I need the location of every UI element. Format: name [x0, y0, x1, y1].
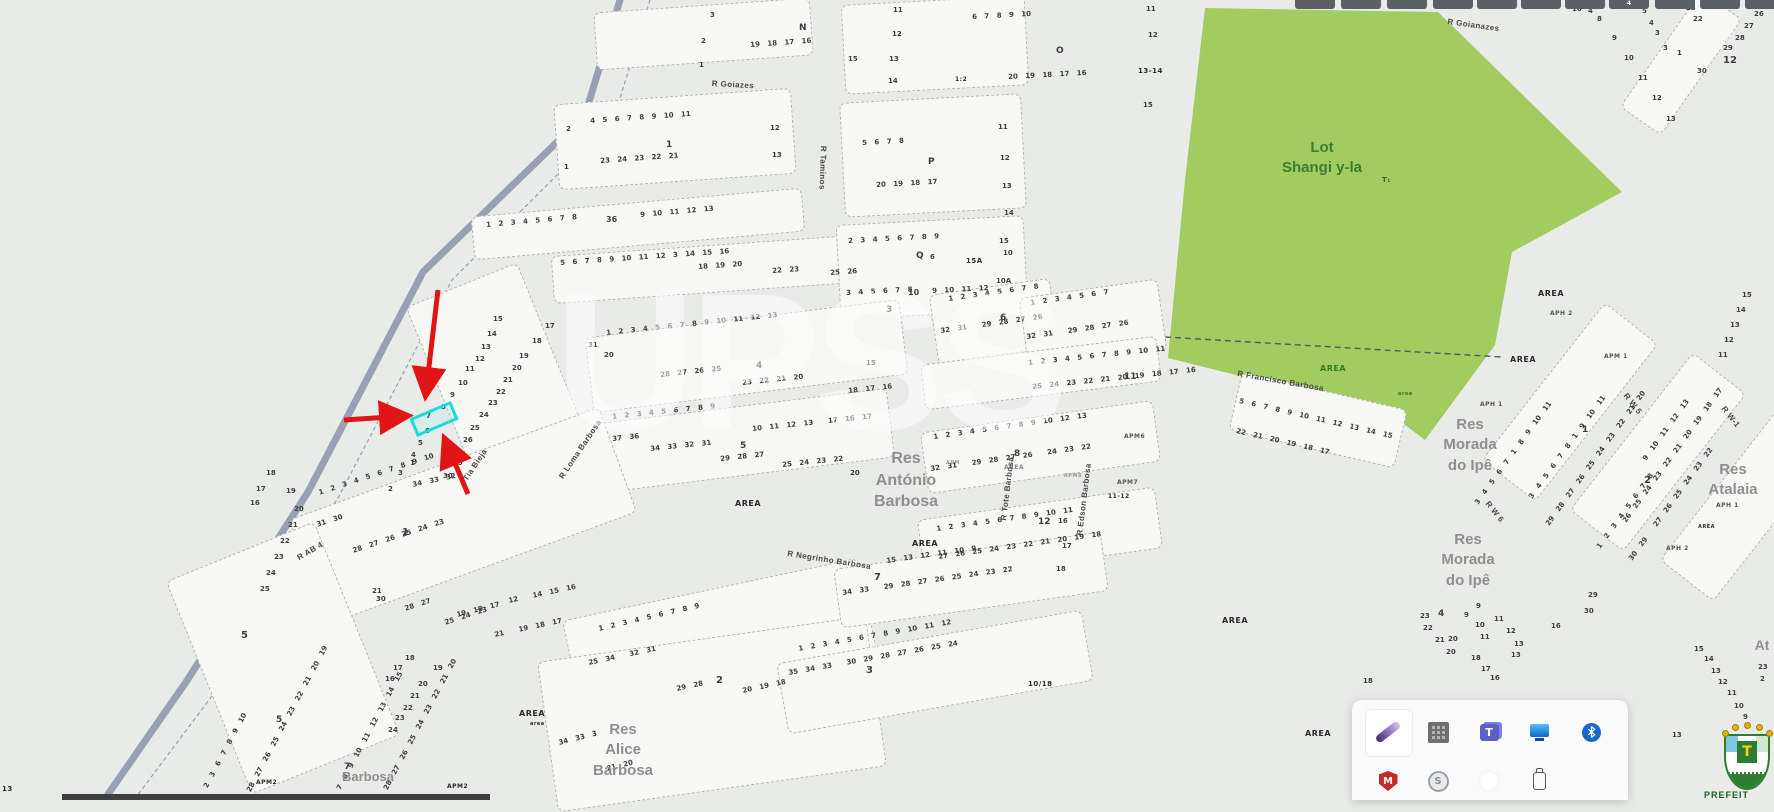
teams-glyph: T: [1480, 724, 1499, 741]
remote-grid-glyph: [1428, 722, 1449, 743]
pointer-arrow: [344, 416, 404, 420]
area-label: AREA: [1698, 525, 1715, 530]
lot-number: 18: [405, 655, 415, 662]
lot-number: 31: [588, 342, 598, 349]
lot-number: 29: [453, 460, 463, 467]
lot-number: 13: [1511, 652, 1521, 659]
bluetooth-icon[interactable]: [1568, 709, 1614, 755]
lot-number: 28 27: [404, 598, 432, 613]
lot-number: 11: [465, 366, 475, 373]
lot-number: 20 19 18 17 16: [1008, 70, 1087, 81]
lot-number: 28: [1735, 35, 1745, 42]
district-label-line: Morada: [1443, 435, 1496, 455]
lot-number: 26: [463, 437, 473, 444]
bottom-bar-fragment: [62, 794, 490, 800]
area-label: area: [530, 722, 545, 727]
crest-crown-dot: [1766, 730, 1773, 737]
lot-number: 20: [1448, 636, 1458, 643]
pen-icon[interactable]: [1365, 709, 1411, 755]
lot-number: 2: [388, 486, 393, 493]
cadastral-map: 32119 18 17 16N15111213146 7 8 9 10O20 1…: [0, 0, 1774, 800]
green-boundary-dash: [1165, 337, 1502, 357]
lot-number: 20: [512, 365, 522, 372]
lot-number: 13: [481, 344, 491, 351]
lot-number: 24: [388, 727, 398, 734]
area-label: AREA: [519, 710, 545, 718]
lot-number: 3: [710, 12, 715, 19]
window-tab[interactable]: [1655, 0, 1695, 9]
lot-number: 9: [1464, 612, 1469, 619]
lot-number: 12: [1718, 679, 1728, 686]
s-badge-icon[interactable]: S: [1415, 758, 1461, 804]
lot-number: 16: [1058, 518, 1068, 525]
area-label: APH 1: [1480, 402, 1503, 408]
window-tab[interactable]: [1341, 0, 1381, 9]
lot-number: 5: [241, 631, 248, 641]
lot-number: 15: [1143, 102, 1153, 109]
lot-number: 13: [1514, 641, 1524, 648]
district-label-line: Barbosa: [874, 491, 938, 513]
highlighted-lot[interactable]: [411, 403, 456, 435]
bluetooth-glyph: [1582, 723, 1601, 742]
district-label-line: Atalaia: [1708, 480, 1757, 500]
white-circle-icon[interactable]: [1466, 758, 1512, 804]
lot-number: O: [1056, 47, 1064, 56]
district-label-line: Res: [593, 720, 653, 740]
usb-glyph: [1533, 772, 1546, 790]
parcel-block: [553, 88, 796, 190]
monitor-icon[interactable]: [1516, 709, 1562, 755]
antonio-barbosa-label: ResAntónioBarbosa: [874, 448, 938, 513]
window-tab[interactable]: [1433, 0, 1473, 9]
district-label-line: Morada: [1441, 550, 1494, 570]
lot-number: 22: [1423, 625, 1433, 632]
lot-number: 10: [1624, 55, 1634, 62]
lot-number: 9: [1476, 603, 1481, 610]
lot-number: 14: [1004, 210, 1014, 217]
alice-barbosa-label: ResAliceBarbosa: [593, 720, 653, 781]
lot-number: 11: [1638, 75, 1648, 82]
lot-number: 21: [288, 522, 298, 529]
area-label: 15A: [966, 258, 983, 265]
lot-number: 22: [496, 389, 506, 396]
window-tab[interactable]: [1295, 0, 1335, 9]
lot-number: 5: [740, 442, 746, 451]
lot-number: 4: [756, 362, 762, 371]
lot-number: 29: [1723, 45, 1733, 52]
lot-number: 12: [1038, 518, 1051, 527]
lot-number: 3: [886, 306, 892, 315]
lot-number: P: [928, 158, 935, 167]
lot-number: 9: [1743, 714, 1748, 721]
window-tab[interactable]: [1521, 0, 1561, 9]
lot-number: 21: [1435, 637, 1445, 644]
crest-crown-dot: [1756, 724, 1763, 731]
lot-number: 19: [433, 665, 443, 672]
lot-number: 10: [458, 380, 468, 387]
lot-number: 12: [1724, 337, 1734, 344]
lot-number: 25: [470, 425, 480, 432]
window-tab[interactable]: [1477, 0, 1517, 9]
area-label: APH 1: [1716, 503, 1739, 509]
lot-number: 20: [1446, 649, 1456, 656]
lot-number: 4: [1588, 8, 1593, 15]
lot-number: 2: [1760, 676, 1765, 683]
lot-number: 29: [1588, 592, 1598, 599]
lot-number: 17: [1062, 543, 1072, 550]
lot-number: 16: [1490, 675, 1500, 682]
area-label: 11-12: [1108, 494, 1130, 500]
lot-number: 13: [889, 56, 899, 63]
lot-number: 20: [850, 470, 860, 477]
lot-number: 26: [1754, 11, 1764, 18]
pen-glyph: [1375, 720, 1402, 744]
lot-number: 2: [716, 676, 723, 686]
lot-number: 24: [479, 412, 489, 419]
lot-number: 11: [1146, 6, 1156, 13]
lot-number: 10: [1475, 622, 1485, 629]
lot-number: 5: [418, 440, 423, 447]
lot-number: 3: [1655, 30, 1660, 37]
lot-number: 27: [1744, 23, 1754, 30]
window-tab[interactable]: [1745, 0, 1774, 9]
lot-number: 11: [1494, 616, 1504, 623]
lot-number: 7: [874, 573, 881, 583]
lot-number: 11: [1727, 690, 1737, 697]
lot-number: 13: [1666, 116, 1676, 123]
mcafee-shield-icon[interactable]: M: [1365, 758, 1411, 804]
district-label-line: do Ipê: [1441, 571, 1494, 591]
lot-number: N: [799, 24, 807, 33]
lot-number: 2: [701, 38, 706, 45]
lot-number: 11: [1718, 352, 1728, 359]
district-label-line: António: [874, 470, 938, 492]
cut-label-at: At: [1755, 636, 1770, 655]
window-tab[interactable]: [1565, 0, 1605, 9]
district-label-line: Res: [874, 448, 938, 470]
district-label-line: Lot: [1282, 138, 1362, 158]
lot-number: 18: [1471, 655, 1481, 662]
monitor-glyph: [1530, 724, 1549, 741]
white-circle-glyph: [1480, 772, 1498, 790]
street-name: R W 6: [1484, 500, 1505, 524]
lot-number: 20: [604, 352, 614, 359]
lot-number: 13: [772, 152, 782, 159]
lot-number: 15: [1742, 292, 1752, 299]
district-label-line: Alice: [593, 740, 653, 760]
crest-crown-dot: [1744, 722, 1751, 729]
lot-number: 12: [892, 31, 902, 38]
lot-number: 6: [1000, 314, 1006, 323]
lot-number: 18: [532, 338, 542, 345]
lot-number: 21 19 18 17: [494, 618, 563, 639]
morada-ipe-label-1: ResMoradado Ipê: [1443, 415, 1496, 476]
district-label-line: Barbosa: [593, 761, 653, 781]
lot-number: 23: [1758, 664, 1768, 671]
lot-number: 8: [1597, 16, 1602, 23]
lot-number: 22: [403, 705, 413, 712]
area-label: AREA: [1222, 617, 1248, 625]
mcafee-glyph: M: [1379, 771, 1398, 791]
area-label: APM 1: [1604, 354, 1628, 360]
lot-number: 3: [1663, 45, 1668, 52]
area-label: APM7: [1117, 480, 1138, 486]
lot-number: 11: [893, 7, 903, 14]
lot-number: 1: [564, 164, 569, 171]
lot-number: 30: [376, 596, 386, 603]
lot-number: 11: [1480, 634, 1490, 641]
lot-number: 15: [866, 360, 876, 367]
lot-number: 11: [998, 124, 1008, 131]
district-label-line: Shangi y-la: [1282, 158, 1362, 178]
street-name: R Goianazes: [1447, 18, 1500, 33]
area-label: 13-14: [1138, 68, 1163, 75]
window-tab[interactable]: 4: [1609, 0, 1649, 9]
area-label: 1:2: [955, 77, 967, 83]
district-label-line: Res: [1443, 415, 1496, 435]
area-label: APH 2: [1666, 546, 1689, 552]
district-label-line: Barbosa: [342, 768, 394, 786]
lot-number: 3: [866, 666, 873, 676]
lot-number: 14: [1704, 656, 1714, 663]
area-label: 13: [2, 786, 13, 793]
lot-number: 12 14 15 16: [508, 584, 577, 605]
area-label: APM6: [1124, 434, 1145, 440]
crest-core: T: [1737, 741, 1757, 763]
lot-number: 23: [274, 554, 284, 561]
shangrila-label: LotShangi y-la: [1282, 138, 1362, 179]
lot-number: 30: [1697, 68, 1707, 75]
area-label: APM8: [1064, 474, 1082, 479]
lot-number: 22: [1693, 16, 1703, 23]
s-badge-glyph: S: [1428, 771, 1449, 792]
remote-grid-icon[interactable]: [1415, 709, 1461, 755]
teams-icon[interactable]: T: [1466, 709, 1512, 755]
parcel-block: [1620, 0, 1742, 135]
usb-device-icon[interactable]: [1516, 758, 1562, 804]
area-label: AREA: [1538, 290, 1564, 298]
lot-number: 15: [1694, 646, 1704, 653]
window-tab[interactable]: [1700, 0, 1740, 9]
lot-number: 12: [770, 125, 780, 132]
crest-shield-icon: T: [1724, 734, 1770, 790]
atalaia-label: ResAtalaia: [1708, 460, 1757, 501]
area-label: AREA: [1320, 365, 1346, 373]
lot-number: 12: [1148, 32, 1158, 39]
crest-crown-dot: [1732, 724, 1739, 731]
lot-number: 21: [503, 377, 513, 384]
lot-number: 12: [1723, 56, 1737, 66]
parcel-block: [839, 93, 1027, 217]
lot-number: 10: [908, 289, 919, 297]
lot-number: 1: [1677, 50, 1682, 57]
lot-number: 14: [487, 331, 497, 338]
lot-number: 5: [1642, 8, 1647, 15]
lot-number: 16: [1551, 623, 1561, 630]
area-label: APH 2: [1550, 311, 1573, 317]
lot-number: 5: [276, 716, 282, 725]
lot-number: 4: [1438, 610, 1444, 619]
lot-number: 10: [1003, 250, 1013, 257]
lot-number: 1: [699, 62, 704, 69]
crest-crown-dot: [1722, 730, 1729, 737]
lot-number: 4: [1649, 20, 1654, 27]
window-tab[interactable]: [1387, 0, 1427, 9]
lot-number: Q: [916, 252, 924, 261]
street-name: R Goiazes: [712, 80, 755, 90]
lot-number: 15: [848, 56, 858, 63]
area-label: AREA: [1510, 356, 1536, 364]
lot-number: 12: [1000, 155, 1010, 162]
area-label: T₁: [1382, 177, 1391, 184]
lot-number: 36: [606, 216, 617, 224]
lot-number: 21: [372, 588, 382, 595]
lot-number: 19: [519, 353, 529, 360]
district-label-line: do Ipê: [1443, 456, 1496, 476]
parcel-block: [593, 0, 814, 70]
lot-number: 19: [286, 488, 296, 495]
municipal-crest: T PREFEIT: [1718, 722, 1774, 800]
street-name: R Taminos: [817, 146, 827, 190]
lot-number: 18: [1363, 678, 1373, 685]
lot-number: 1: [666, 141, 672, 150]
lot-number: 2: [566, 126, 571, 133]
morada-ipe-label-2: ResMoradado Ipê: [1441, 530, 1494, 591]
lot-number: 30: [1584, 608, 1594, 615]
lot-number: 9: [450, 392, 455, 399]
lot-number: 14: [1736, 307, 1746, 314]
lot-number: 23: [1420, 613, 1430, 620]
lot-number: 15: [999, 238, 1009, 245]
lot-number: 22: [280, 538, 290, 545]
lot-number: 12: [1506, 628, 1516, 635]
lot-number: 23: [488, 400, 498, 407]
lot-number: 13: [1672, 732, 1682, 739]
lot-number: 13: [1730, 322, 1740, 329]
lot-number: 25: [260, 586, 270, 593]
lot-number: 12: [1652, 95, 1662, 102]
area-label: APM2: [447, 784, 468, 790]
lot-number: 13: [1711, 668, 1721, 675]
lot-number: 15: [493, 316, 503, 323]
lot-number: 10: [1734, 703, 1744, 710]
cut-label-barbosa: Barbosa: [342, 768, 394, 786]
district-label-line: Res: [1441, 530, 1494, 550]
lot-number: 9: [1612, 35, 1617, 42]
area-label: 10/18: [1028, 681, 1053, 688]
lot-number: 18: [1056, 566, 1066, 573]
system-tray-overflow: TMS: [1352, 700, 1628, 800]
lot-number: 16: [250, 500, 260, 507]
lot-number: 13: [1002, 183, 1012, 190]
lot-number: 6: [930, 254, 935, 261]
lot-number: 24: [266, 570, 276, 577]
lot-number: 10A: [996, 278, 1011, 285]
area-label: AREA: [1305, 730, 1331, 738]
lot-number: 1: [1582, 426, 1588, 435]
area-label: AREA: [912, 540, 938, 548]
crest-text: PREFEIT: [1704, 790, 1749, 800]
lot-number: 17: [1481, 666, 1491, 673]
area-label: APM: [946, 461, 960, 466]
lot-number: 21: [410, 693, 420, 700]
lot-number: 12: [475, 356, 485, 363]
district-label-line: At: [1755, 636, 1770, 655]
lot-number: 17: [256, 486, 266, 493]
lot-number: 17: [545, 323, 555, 330]
district-label-line: Res: [1708, 460, 1757, 480]
lot-number: 20: [294, 506, 304, 513]
area-label: AREA: [735, 500, 761, 508]
lot-number: 20: [418, 681, 428, 688]
lot-number: 14: [888, 78, 898, 85]
area-label: area: [1398, 392, 1413, 397]
lot-number: 18: [266, 470, 276, 477]
lot-number: 23: [395, 715, 405, 722]
area-label: APM2: [256, 780, 277, 786]
